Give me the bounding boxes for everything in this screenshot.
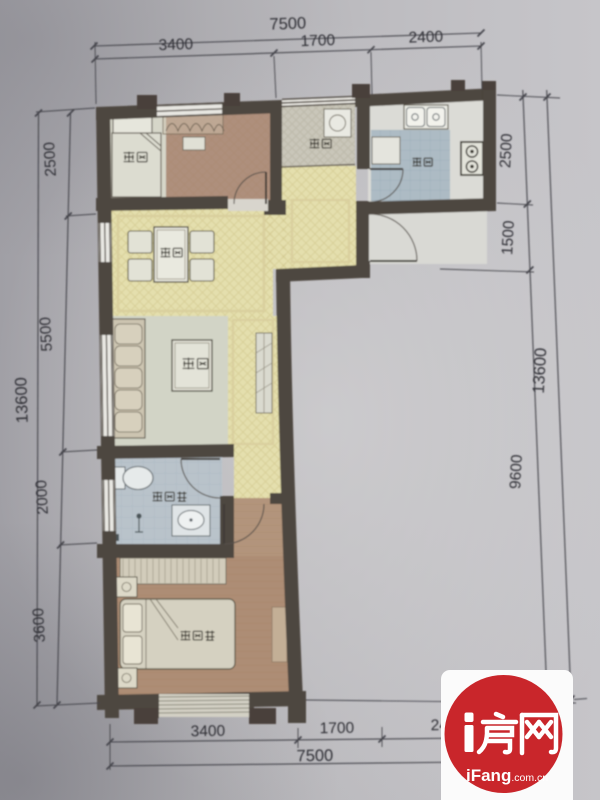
svg-text:1500: 1500 [499, 220, 518, 256]
svg-text:1700: 1700 [300, 32, 335, 50]
svg-text:7500: 7500 [269, 14, 306, 33]
svg-text:3400: 3400 [158, 36, 193, 54]
svg-text:13600: 13600 [12, 377, 32, 423]
svg-text:9600: 9600 [507, 454, 526, 490]
svg-text:3600: 3600 [30, 607, 49, 643]
svg-text:2400: 2400 [408, 28, 443, 46]
svg-text:13600: 13600 [530, 347, 550, 394]
svg-text:2500: 2500 [497, 133, 516, 169]
svg-text:3400: 3400 [191, 723, 226, 741]
svg-text:2500: 2500 [41, 141, 60, 177]
svg-text:5500: 5500 [37, 316, 56, 352]
svg-text:7500: 7500 [296, 747, 333, 766]
svg-text:2000: 2000 [33, 479, 52, 515]
svg-text:1700: 1700 [320, 720, 355, 738]
